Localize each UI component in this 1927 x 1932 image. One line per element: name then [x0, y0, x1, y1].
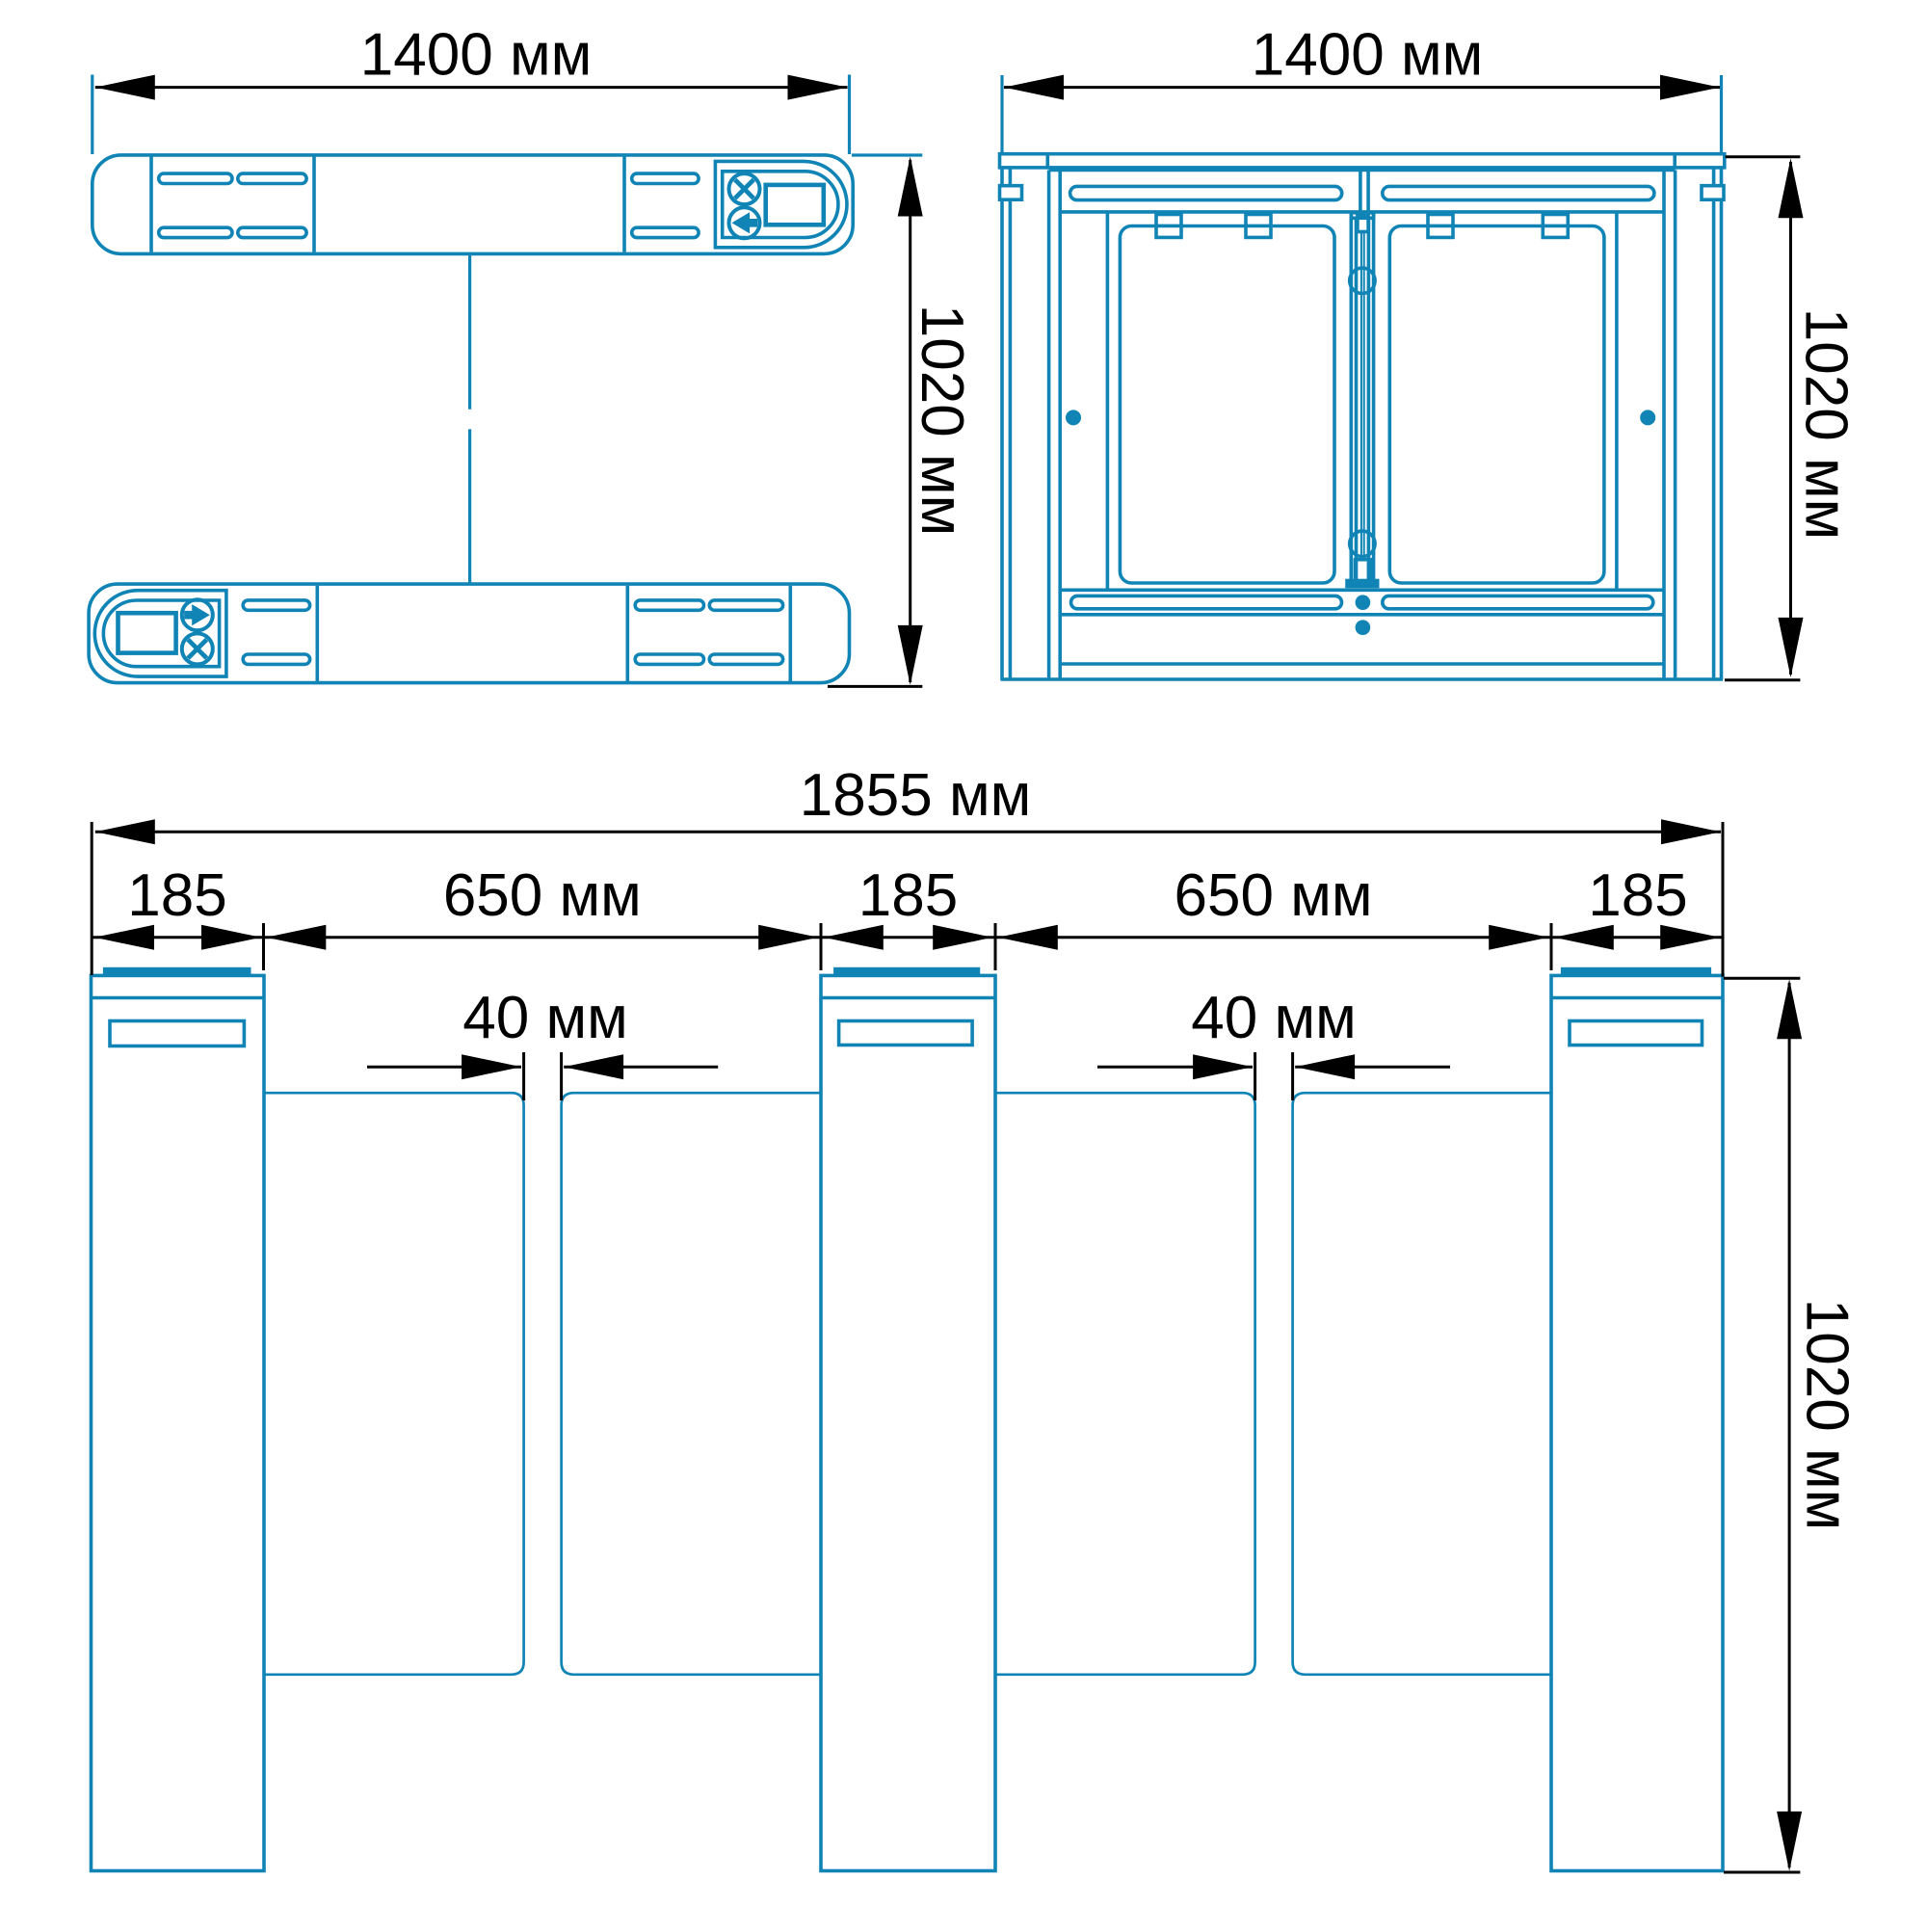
- svg-text:40 мм: 40 мм: [462, 985, 627, 1051]
- svg-text:1400 мм: 1400 мм: [360, 22, 592, 89]
- svg-text:40 мм: 40 мм: [1191, 985, 1356, 1051]
- svg-text:1020 мм: 1020 мм: [909, 304, 975, 536]
- svg-text:185: 185: [127, 862, 226, 929]
- svg-text:185: 185: [1588, 862, 1687, 929]
- svg-text:650 мм: 650 мм: [1175, 862, 1373, 929]
- svg-text:650 мм: 650 мм: [443, 862, 642, 929]
- svg-text:1855 мм: 1855 мм: [800, 762, 1031, 829]
- svg-text:1020 мм: 1020 мм: [1793, 308, 1860, 540]
- svg-text:185: 185: [858, 862, 958, 929]
- svg-text:1020 мм: 1020 мм: [1794, 1299, 1861, 1530]
- svg-text:1400 мм: 1400 мм: [1252, 22, 1483, 89]
